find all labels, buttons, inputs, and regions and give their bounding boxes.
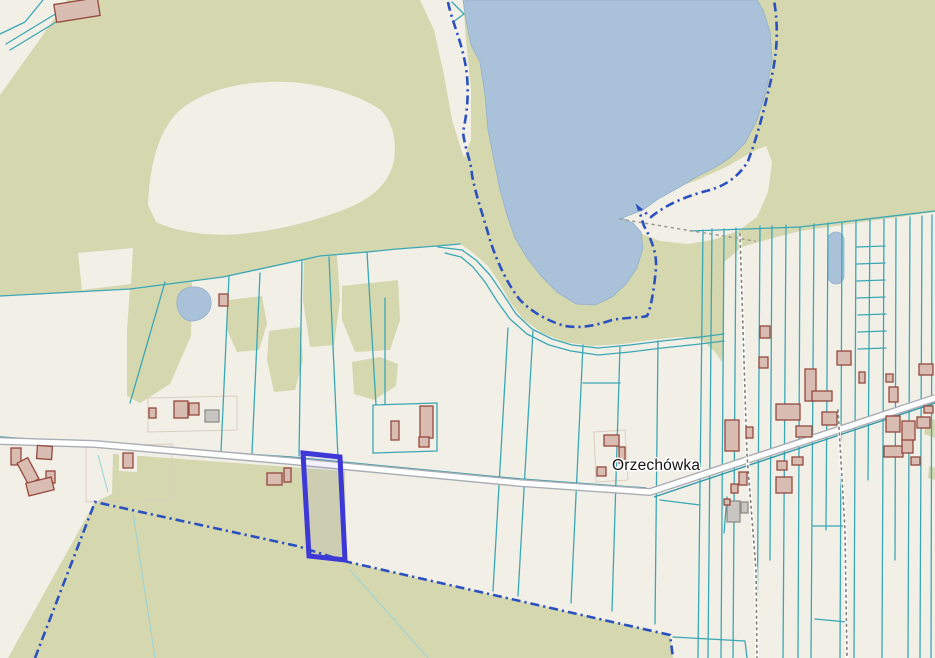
building	[776, 404, 800, 420]
place-label-orzechowka: Orzechówka	[612, 457, 700, 474]
building	[886, 416, 900, 432]
selected-parcel[interactable]	[303, 453, 345, 560]
building	[760, 326, 770, 338]
building	[902, 439, 913, 453]
building	[917, 417, 930, 428]
building	[746, 427, 753, 438]
building	[604, 435, 619, 446]
building	[284, 468, 291, 482]
building	[725, 420, 739, 451]
building	[859, 372, 865, 383]
building	[149, 408, 156, 418]
building	[777, 461, 787, 470]
building	[911, 457, 920, 465]
building	[822, 412, 837, 425]
map-canvas[interactable]: Orzechówka	[0, 0, 935, 658]
building	[884, 446, 903, 457]
building	[886, 374, 893, 382]
building	[924, 406, 933, 413]
building	[776, 477, 792, 493]
forest-clearing-small	[78, 248, 133, 290]
building	[597, 467, 606, 476]
building	[37, 445, 53, 459]
building	[889, 387, 898, 402]
building	[724, 499, 730, 505]
pond-west	[177, 287, 211, 321]
building	[739, 472, 747, 485]
building	[812, 391, 832, 401]
building	[837, 351, 851, 365]
building	[420, 406, 433, 438]
building	[741, 502, 748, 513]
building	[902, 421, 915, 440]
building	[391, 421, 399, 440]
building	[731, 484, 738, 493]
building	[792, 457, 803, 465]
building	[919, 364, 933, 375]
building	[189, 403, 199, 415]
building	[419, 437, 429, 447]
building	[267, 473, 282, 485]
building	[219, 294, 228, 306]
building	[759, 357, 768, 368]
building	[174, 401, 188, 418]
building	[123, 453, 133, 468]
building	[796, 426, 812, 437]
building	[205, 410, 219, 422]
